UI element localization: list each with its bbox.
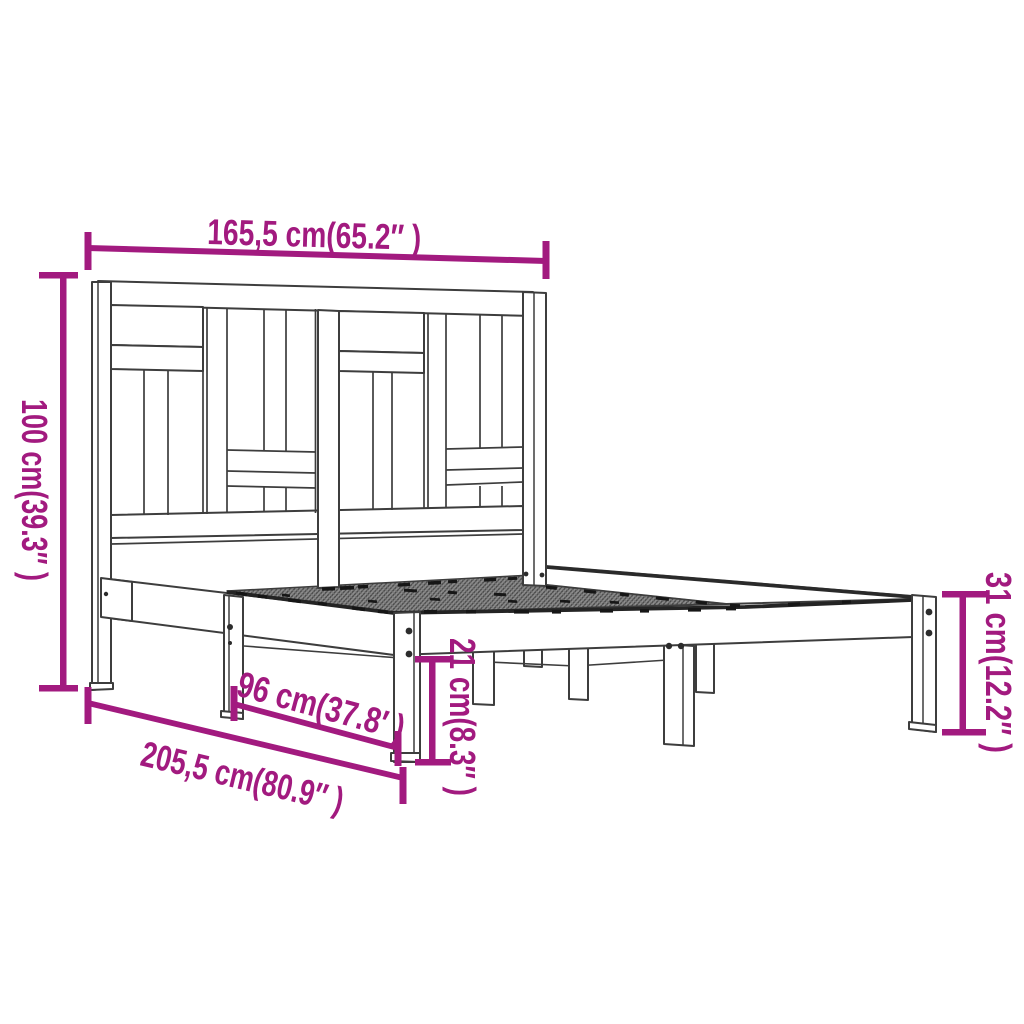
svg-text:100 cm(39.3″ ): 100 cm(39.3″ ) <box>14 399 55 581</box>
svg-text:21 cm(8.3″ ): 21 cm(8.3″ ) <box>442 638 483 796</box>
svg-text:165,5 cm(65.2″ ): 165,5 cm(65.2″ ) <box>207 211 422 258</box>
svg-text:31 cm(12.2″ ): 31 cm(12.2″ ) <box>978 572 1019 753</box>
